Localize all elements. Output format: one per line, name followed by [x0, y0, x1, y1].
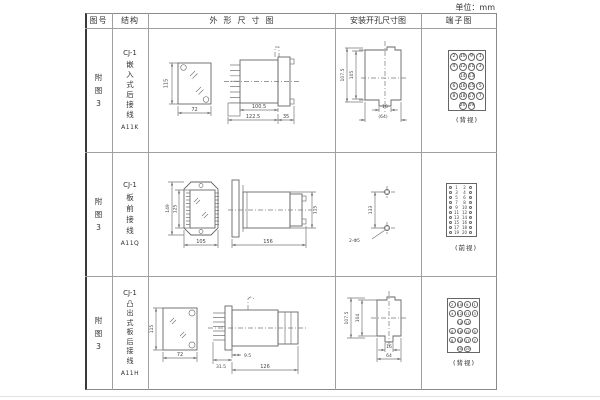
terminal-pin: 13: [468, 72, 476, 80]
terminal-pin: 7: [476, 92, 484, 100]
terminal-row: 21091: [450, 52, 484, 62]
dim-label: 115: [149, 325, 155, 334]
header-fig-no: 图号: [85, 13, 112, 28]
terminal-pin: 13: [464, 319, 471, 326]
terminal-number: 19: [453, 230, 460, 235]
dim-label: 16: [386, 344, 392, 350]
mount-label: 板前接线: [126, 192, 134, 236]
mount-label: 嵌入式后接线: [126, 60, 134, 120]
header-install: 安装开孔尺寸图: [335, 13, 421, 28]
outline-drawing-a11h: 115 72 9.5 31.5 126: [148, 276, 335, 390]
terminal-pin: [469, 196, 472, 199]
terminal-pin: [469, 226, 472, 229]
outline-drawing-a11k: 115 72 100.5 122.5 35: [148, 28, 335, 152]
terminal-pin: 2: [449, 301, 456, 308]
dim-label: 126: [260, 364, 270, 370]
terminal-gap: [449, 346, 456, 353]
terminal-pin: [449, 191, 452, 194]
terminal-pin: 18: [459, 92, 467, 100]
terminal-pin: [469, 206, 472, 209]
terminal-gap: [472, 319, 479, 326]
dim-label: 100.5: [252, 104, 266, 110]
terminal-pin: 14: [459, 72, 467, 80]
terminal-pin: 15: [468, 82, 476, 90]
terminal-pin: [469, 191, 472, 194]
terminal-pin: 18: [457, 337, 464, 344]
install-drawing-a11k: 107.5 105 16 (64): [335, 28, 421, 152]
terminal-row: 818177: [449, 336, 478, 345]
terminal-diagram-a11k: 2109141211314136161558181772019: [448, 50, 486, 111]
hole-count-label: 2-Φ5: [349, 238, 360, 244]
terminal-pin: 3: [476, 63, 484, 71]
unit-label: 单位：mm: [425, 2, 495, 13]
terminal-pin: [469, 221, 472, 224]
code-label: A11K: [121, 124, 139, 131]
structure-cell-a11h: CJ-1 凸出式板后接线 A11H: [112, 276, 148, 390]
terminal-strip-row: 1920: [449, 230, 474, 235]
fig-no-label: 附图3: [95, 314, 103, 353]
header-structure: 结构: [112, 13, 148, 28]
terminal-pin: [449, 211, 452, 214]
terminal-caption: (背视): [440, 357, 488, 367]
terminal-pin: 11: [464, 310, 471, 317]
terminal-pin: 1: [472, 301, 479, 308]
fig-no-cell-a11k: 附图3: [85, 28, 112, 152]
terminal-pin: 1: [476, 53, 484, 61]
terminal-gap: [450, 102, 458, 110]
terminal-row: 412113: [449, 309, 478, 318]
terminal-gap: [476, 102, 484, 110]
header-outline: 外形尺寸图: [148, 13, 335, 28]
terminal-row: 412113: [450, 62, 484, 72]
dim-label: 105: [196, 239, 206, 245]
terminal-caption: (前视): [440, 242, 492, 252]
model-label: CJ-1: [123, 289, 137, 297]
dim-label: 122.5: [246, 114, 260, 120]
terminal-gap: [450, 72, 458, 80]
terminal-pin: 9: [464, 301, 471, 308]
terminal-row: 616155: [450, 81, 484, 91]
terminal-gap: [472, 346, 479, 353]
terminal-row: 818177: [450, 91, 484, 101]
dim-label: 105: [349, 71, 355, 80]
dim-label: 125: [173, 205, 179, 214]
model-label: CJ-1: [123, 181, 137, 189]
terminal-pin: 11: [468, 63, 476, 71]
dim-label: 107.5: [340, 68, 346, 81]
terminal-diagram-a11q: 1234567891011121314151617181920: [446, 183, 477, 237]
dim-label: 133: [368, 206, 374, 215]
terminal-pin: 20: [459, 102, 467, 110]
dim-label: 35: [283, 114, 289, 120]
terminal-pin: 3: [472, 310, 479, 317]
dim-label: 115: [313, 206, 319, 215]
install-drawing-a11h: 107.5 104 16 64: [335, 276, 421, 390]
terminal-pin: 17: [468, 92, 476, 100]
terminal-pin: [449, 206, 452, 209]
terminal-gap: [476, 72, 484, 80]
dim-label: 104: [355, 314, 361, 323]
terminal-diagram-a11h: 2109141211314136161558181772019: [447, 298, 480, 353]
page-edge-line: [0, 396, 600, 397]
terminal-number: 20: [461, 230, 468, 235]
terminal-pin: 4: [450, 63, 458, 71]
code-label: A11Q: [121, 240, 139, 247]
fig-no-label: 附图3: [95, 71, 103, 110]
terminal-pin: 10: [459, 53, 467, 61]
terminal-pin: 12: [457, 310, 464, 317]
terminal-pin: 8: [449, 337, 456, 344]
terminal-pin: [469, 231, 472, 234]
install-drawing-a11q: 133 2-Φ5: [335, 152, 421, 276]
dim-label: 9.5: [244, 353, 251, 359]
fig-no-cell-a11h: 附图3: [85, 276, 112, 390]
terminal-row: 2019: [450, 101, 484, 111]
terminal-pin: 12: [459, 63, 467, 71]
outline-drawing-a11q: 149 125 105 156 115: [148, 152, 335, 276]
fig-no-cell-a11q: 附图3: [85, 152, 112, 276]
terminal-pin: [469, 211, 472, 214]
terminal-pin: 14: [457, 319, 464, 326]
terminal-pin: 2: [450, 53, 458, 61]
terminal-pin: [449, 216, 452, 219]
structure-cell-a11q: CJ-1 板前接线 A11Q: [112, 152, 148, 276]
terminal-row: 1413: [450, 72, 484, 82]
terminal-pin: [449, 221, 452, 224]
terminal-row: 2019: [449, 344, 478, 353]
terminal-pin: 19: [468, 102, 476, 110]
structure-cell-a11k: CJ-1 嵌入式后接线 A11K: [112, 28, 148, 152]
dim-label: 115: [164, 79, 170, 89]
dim-label: 156: [263, 239, 273, 245]
dim-label: 31.5: [216, 364, 226, 370]
manual-page: 单位：mm 图号 结构 外形尺寸图 安装开孔尺寸图 端子图 附图3 CJ-1 嵌…: [0, 0, 600, 400]
terminal-pin: [469, 186, 472, 189]
terminal-pin: [449, 231, 452, 234]
dim-label: 64: [386, 353, 392, 359]
terminal-pin: 9: [468, 53, 476, 61]
mount-label: 凸出式板后接线: [127, 300, 134, 367]
terminal-gap: [449, 319, 456, 326]
terminal-pin: [469, 216, 472, 219]
terminal-pin: 4: [449, 310, 456, 317]
terminal-pin: 16: [459, 82, 467, 90]
terminal-pin: 6: [449, 328, 456, 335]
dim-label: (64): [378, 114, 387, 120]
terminal-pin: 8: [450, 92, 458, 100]
terminal-row: 616155: [449, 327, 478, 336]
terminal-pin: 7: [472, 337, 479, 344]
terminal-row: 21091: [449, 300, 478, 309]
terminal-pin: 17: [464, 337, 471, 344]
terminal-pin: 20: [457, 346, 464, 353]
terminal-pin: 5: [476, 82, 484, 90]
terminal-pin: 19: [464, 346, 471, 353]
fig-no-label: 附图3: [95, 195, 103, 234]
dim-label: 16: [382, 104, 388, 110]
terminal-pin: 15: [464, 328, 471, 335]
header-terminal: 端子图: [421, 13, 497, 28]
dim-label: 149: [165, 204, 171, 213]
terminal-caption: (背视): [441, 114, 493, 124]
terminal-pin: 16: [457, 328, 464, 335]
dim-label: 72: [177, 352, 183, 358]
dim-label: 107.5: [344, 311, 350, 324]
terminal-row: 1413: [449, 318, 478, 327]
terminal-pin: [449, 186, 452, 189]
terminal-pin: [449, 196, 452, 199]
terminal-pin: 5: [472, 328, 479, 335]
dim-label: 72: [191, 107, 197, 113]
table-vline: [421, 13, 422, 390]
terminal-pin: [449, 226, 452, 229]
terminal-pin: [449, 201, 452, 204]
terminal-pin: 6: [450, 82, 458, 90]
code-label: A11H: [121, 370, 139, 377]
model-label: CJ-1: [123, 49, 137, 57]
terminal-pin: [469, 201, 472, 204]
terminal-pin: 10: [457, 301, 464, 308]
